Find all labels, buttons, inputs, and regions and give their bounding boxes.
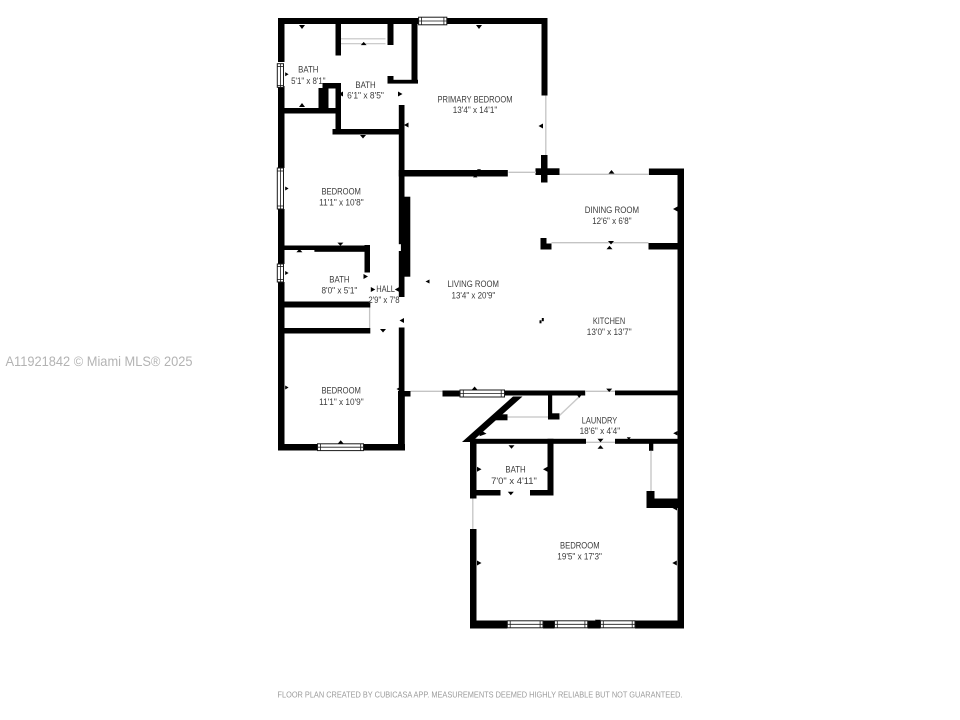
svg-text:BATH: BATH (329, 275, 349, 285)
svg-text:BATH: BATH (505, 465, 525, 475)
svg-text:19'5" x 17'3": 19'5" x 17'3" (557, 552, 602, 562)
svg-text:BEDROOM: BEDROOM (560, 541, 600, 551)
svg-text:2'9" x 7'8: 2'9" x 7'8 (368, 295, 399, 305)
svg-text:13'4" x 20'9": 13'4" x 20'9" (452, 290, 496, 300)
svg-text:6'1" x 8'5": 6'1" x 8'5" (347, 91, 384, 101)
svg-text:18'6" x 4'4": 18'6" x 4'4" (580, 426, 621, 436)
svg-text:A11921842 © Miami MLS® 2025: A11921842 © Miami MLS® 2025 (6, 354, 193, 369)
svg-text:KITCHEN: KITCHEN (593, 316, 625, 326)
svg-text:BATH: BATH (355, 80, 375, 90)
svg-text:11'1" x 10'8": 11'1" x 10'8" (319, 197, 364, 207)
svg-text:8'0" x 5'1": 8'0" x 5'1" (321, 286, 357, 296)
svg-text:HALL: HALL (376, 284, 395, 294)
svg-text:7'0" x 4'11": 7'0" x 4'11" (491, 476, 537, 486)
svg-text:13'0" x 13'7": 13'0" x 13'7" (587, 327, 632, 337)
svg-text:12'6" x 6'8": 12'6" x 6'8" (592, 216, 631, 226)
svg-text:LIVING ROOM: LIVING ROOM (447, 279, 499, 289)
svg-text:BEDROOM: BEDROOM (321, 386, 361, 396)
svg-text:13'4" x 14'1": 13'4" x 14'1" (453, 105, 498, 115)
svg-text:LAUNDRY: LAUNDRY (582, 415, 617, 425)
svg-text:11'1" x 10'9": 11'1" x 10'9" (319, 397, 364, 407)
svg-text:DINING ROOM: DINING ROOM (585, 205, 639, 215)
svg-text:BATH: BATH (298, 65, 318, 75)
svg-text:BEDROOM: BEDROOM (321, 187, 361, 197)
svg-text:5'1" x 8'1": 5'1" x 8'1" (291, 76, 325, 86)
svg-text:FLOOR PLAN CREATED BY CUBICASA: FLOOR PLAN CREATED BY CUBICASA APP. MEAS… (278, 690, 683, 700)
svg-text:PRIMARY BEDROOM: PRIMARY BEDROOM (438, 95, 513, 105)
